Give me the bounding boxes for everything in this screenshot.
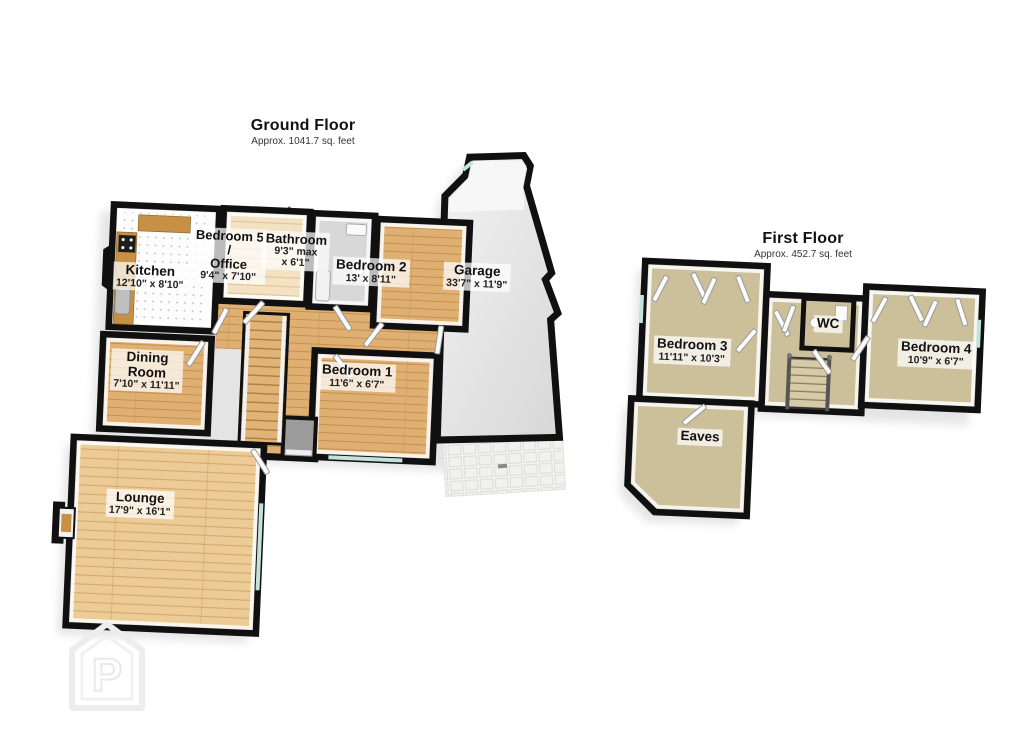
staircase-ground: [239, 312, 289, 444]
room-label-bedroom1: Bedroom 1 11'6" x 6'7": [318, 361, 396, 392]
room-label-lounge: Lounge 17'9" x 16'1": [106, 489, 175, 520]
fireplace-hearth: [61, 514, 72, 532]
ground-floor-title-text: Ground Floor: [251, 117, 356, 135]
room-label-bedroom4: Bedroom 4 10'9" x 6'7": [897, 338, 975, 369]
room-dims: 7'10" x 11'11": [113, 378, 180, 392]
room-label-wc: WC: [813, 315, 842, 333]
bathroom-basin-icon: [346, 224, 366, 236]
room-dims: 9'4" x 7'10": [194, 270, 262, 284]
room-dims: x 6'1": [265, 257, 327, 271]
kitchen-counter-top: [138, 215, 191, 233]
room-label-bedroom3: Bedroom 3 11'11" x 10'3": [653, 335, 731, 366]
room-name: Eaves: [680, 429, 720, 445]
ground-floor-title: Ground Floor Approx. 1041.7 sq. feet: [251, 117, 356, 147]
ground-floor-subtitle-text: Approx. 1041.7 sq. feet: [251, 136, 356, 147]
room-name: WC: [816, 316, 839, 332]
first-floor-plan: [618, 260, 983, 535]
floorplan-page: P Ground Floor Approx. 1041.7 sq. feet F…: [0, 0, 1024, 744]
room-label-dining: Dining Room 7'10" x 11'11": [110, 348, 184, 394]
first-floor-title-text: First Floor: [754, 230, 852, 248]
room-label-bedroom5-office: Bedroom 5 / Office 9'4" x 7'10": [191, 227, 267, 286]
room-dims: 11'6" x 6'7": [321, 377, 392, 391]
room-dims: 13' x 8'11": [335, 272, 406, 286]
first-floor-subtitle-text: Approx. 452.7 sq. feet: [754, 249, 852, 260]
room-dims: 12'10" x 8'10": [116, 277, 184, 291]
room-dims: 33'7" x 11'9": [446, 277, 508, 291]
room-label-kitchen: Kitchen 12'10" x 8'10": [113, 261, 188, 292]
ground-floor-plan: [47, 136, 580, 657]
kitchen-sink-icon: [114, 288, 130, 315]
first-floor-title: First Floor Approx. 452.7 sq. feet: [754, 230, 852, 260]
room-dims: 17'9" x 16'1": [109, 504, 171, 518]
driveway: [443, 435, 566, 496]
bedroom3-window: [641, 295, 642, 323]
room-label-bedroom2: Bedroom 2 13' x 8'11": [332, 256, 410, 287]
bathroom-bath-icon: [315, 271, 330, 302]
room-dims: 11'11" x 10'3": [656, 351, 727, 365]
bedroom4-window: [978, 320, 979, 348]
kitchen-hob-icon: [118, 235, 136, 253]
watermark-letter: P: [92, 649, 123, 701]
entrance-porch: [282, 417, 316, 458]
room-label-garage: Garage 33'7" x 11'9": [443, 262, 511, 293]
room-label-bathroom: Bathroom 9'3" max x 6'1": [261, 230, 330, 272]
room-dims: 10'9" x 6'7": [900, 354, 971, 368]
room-label-eaves: Eaves: [677, 428, 723, 447]
room-lounge: [48, 436, 264, 633]
room-bedroom3: [637, 261, 767, 404]
